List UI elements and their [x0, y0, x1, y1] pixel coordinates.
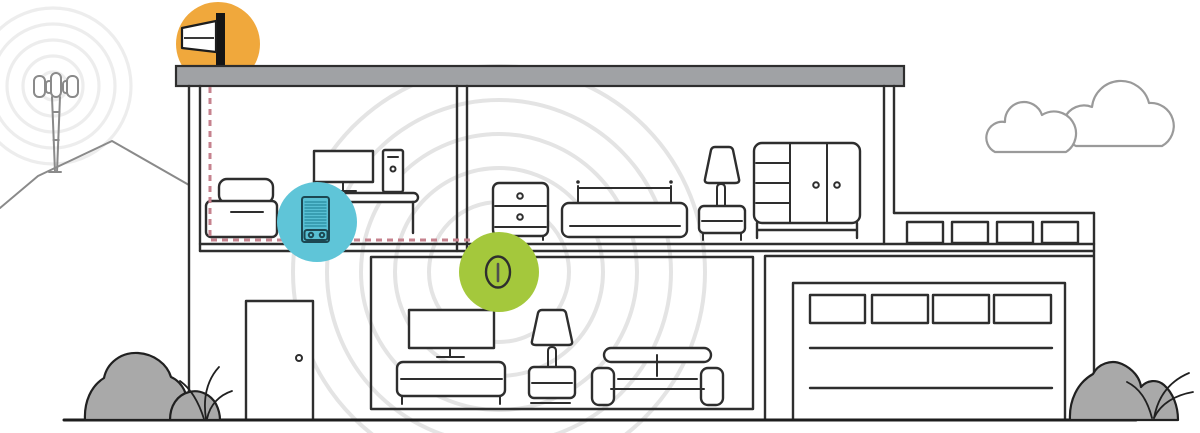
signal-booster-illustration: [0, 0, 1200, 433]
dresser-icon: [493, 183, 548, 240]
signal-booster-badge[interactable]: [277, 182, 357, 262]
indoor-antenna-badge[interactable]: [459, 232, 539, 312]
antenna-mast: [216, 13, 225, 67]
side-table-icon: [529, 367, 575, 403]
front-door[interactable]: [246, 301, 313, 420]
bed-icon: [562, 180, 687, 237]
wardrobe-icon: [754, 143, 860, 238]
computer-tower-icon: [383, 150, 403, 192]
signal-booster-icon: [302, 197, 329, 242]
roof: [176, 66, 904, 86]
